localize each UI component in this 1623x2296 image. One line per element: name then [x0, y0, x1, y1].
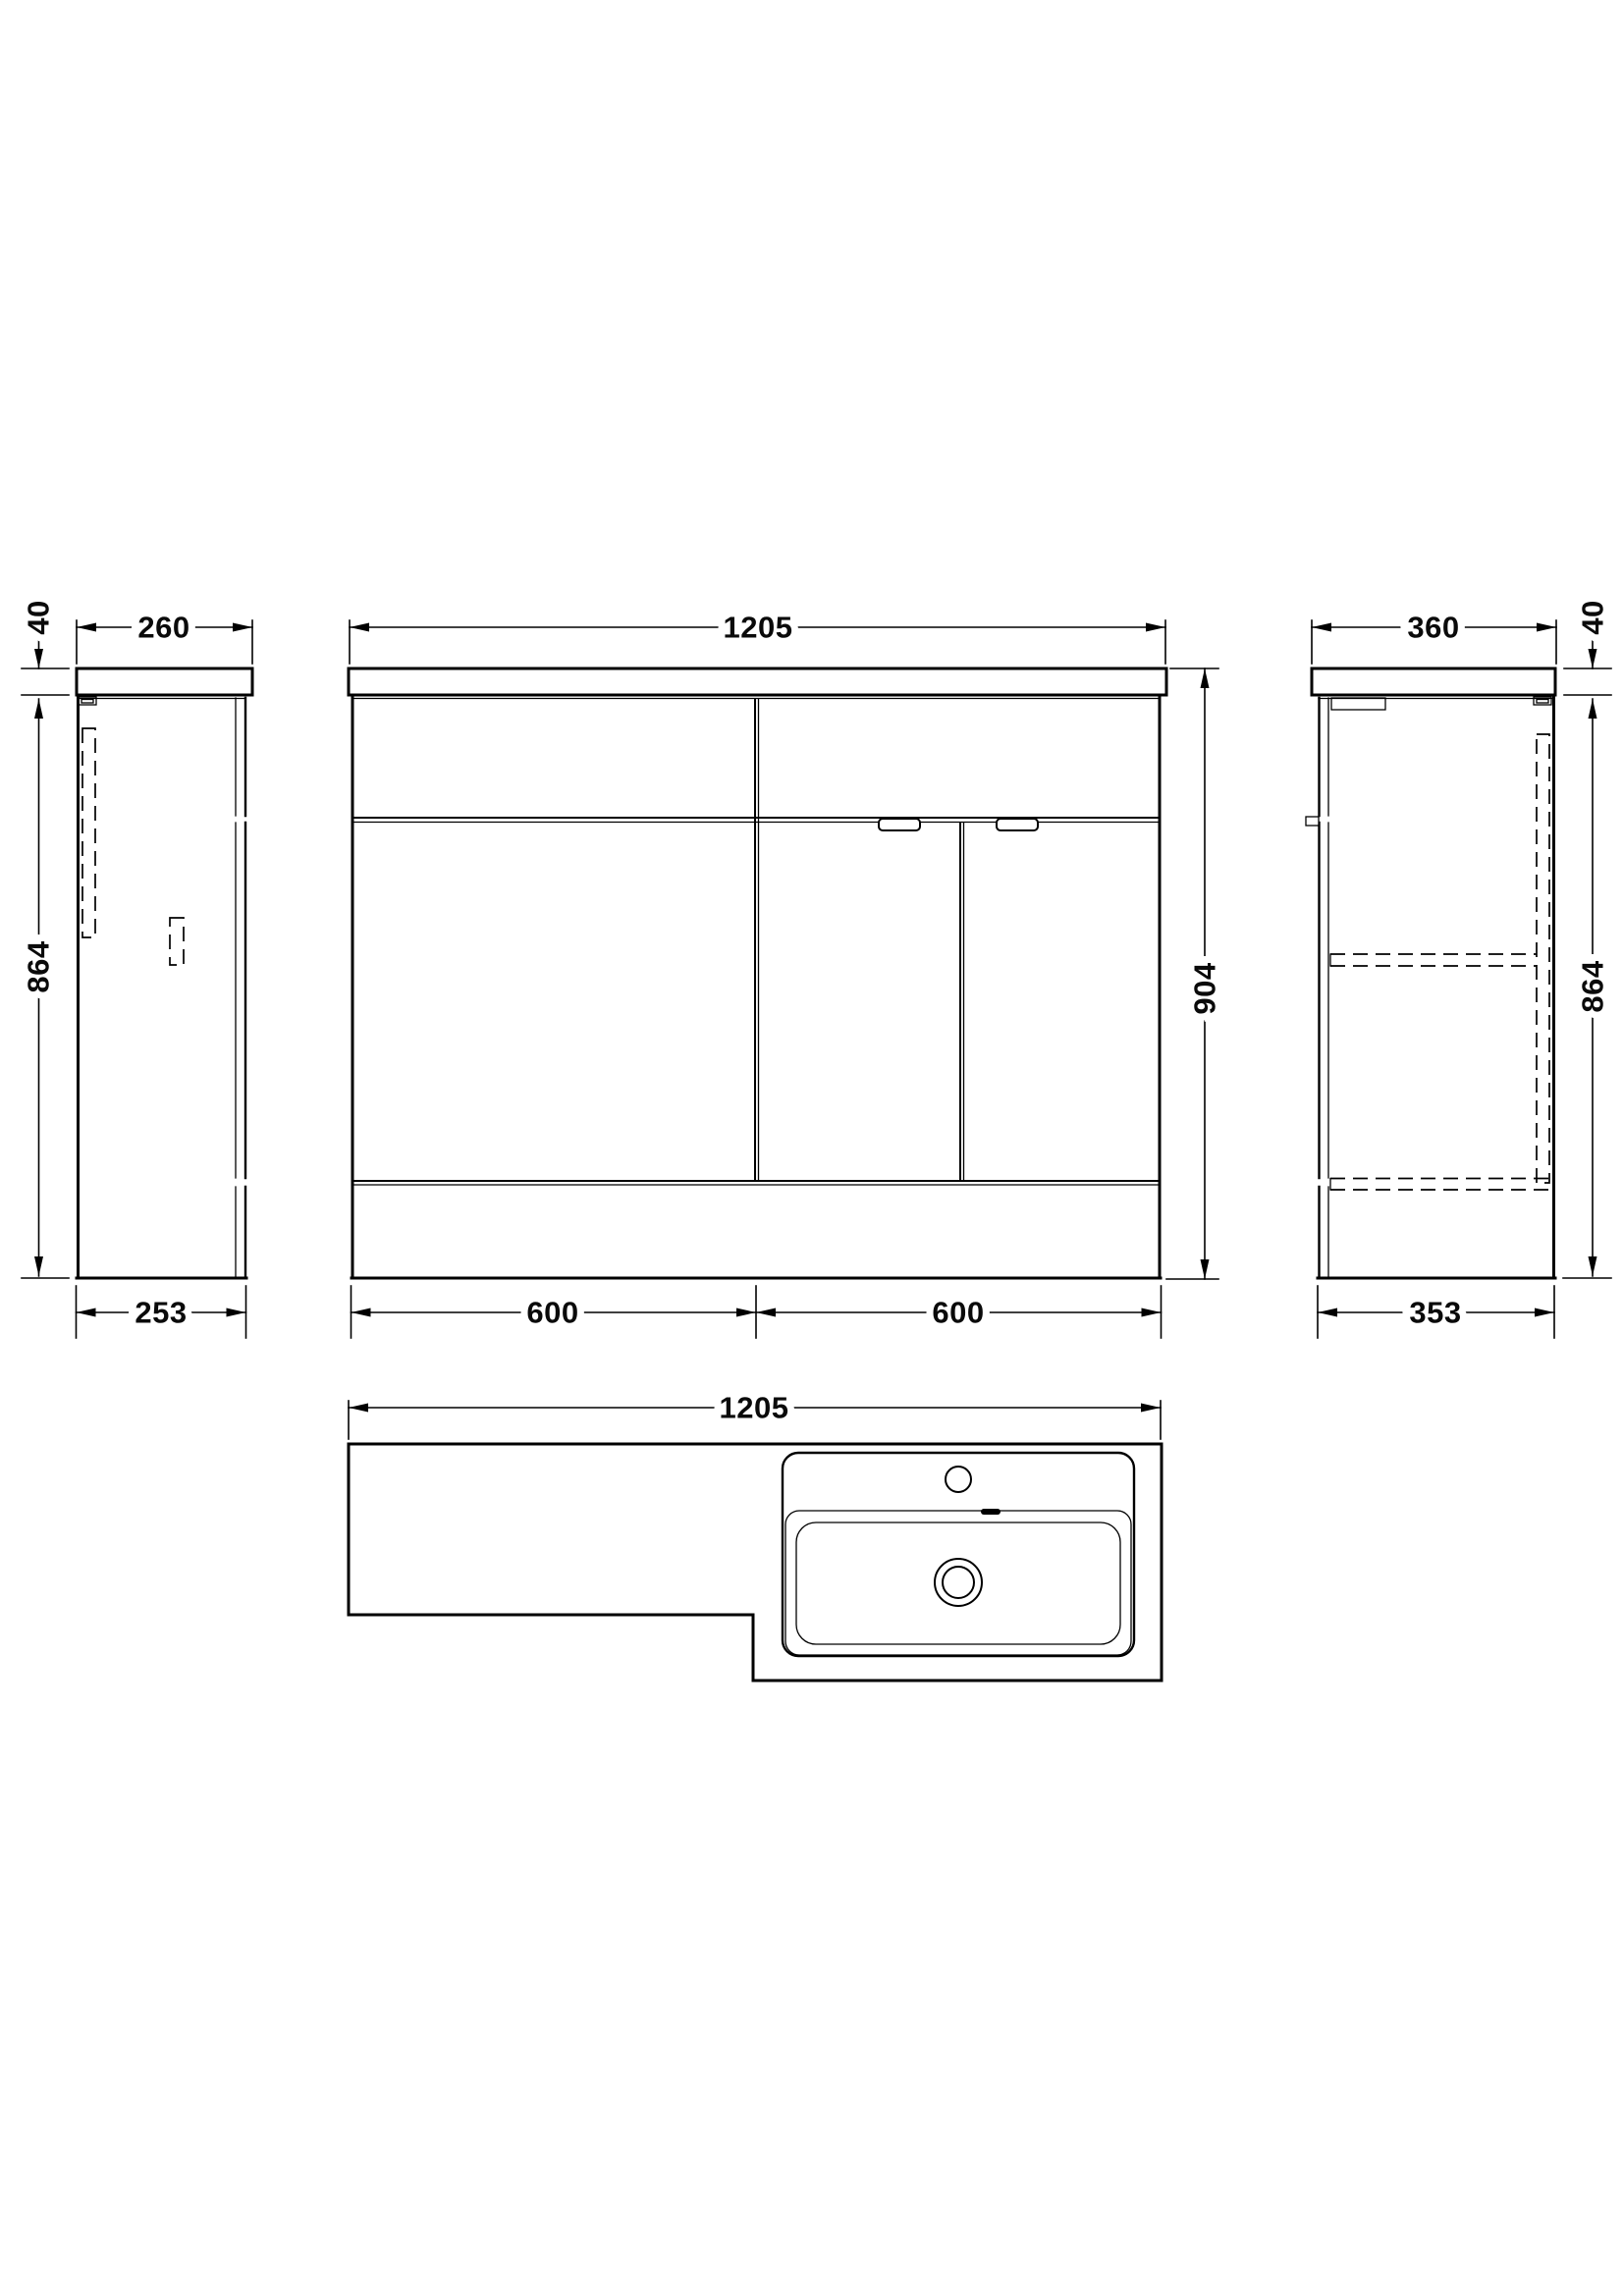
- dim-253-label: 253: [135, 1296, 187, 1330]
- left-view-countertop: [77, 668, 252, 695]
- overflow-slot-icon: [981, 1509, 1001, 1515]
- background: [0, 0, 1623, 2296]
- technical-drawing-page: 260 1205 360 40 40: [0, 0, 1623, 2296]
- dim-600-right-label: 600: [932, 1296, 984, 1330]
- right-view-countertop: [1312, 668, 1555, 695]
- drawing-canvas: 260 1205 360 40 40: [0, 0, 1623, 2296]
- dim-904-label: 904: [1188, 962, 1222, 1014]
- door-handle-left: [879, 819, 920, 830]
- dim-600-left-label: 600: [526, 1296, 578, 1330]
- dim-864-right-label: 864: [1576, 960, 1610, 1012]
- dim-40-right-label: 40: [1576, 600, 1610, 634]
- right-view-handle-profile: [1306, 817, 1319, 826]
- door-handle-right: [997, 819, 1038, 830]
- dim-40-left-label: 40: [22, 600, 56, 634]
- dim-864-left-label: 864: [22, 940, 56, 992]
- dim-1205-plan-label: 1205: [720, 1391, 789, 1425]
- dim-1205-front-label: 1205: [724, 611, 793, 645]
- dim-360-label: 360: [1407, 611, 1459, 645]
- dim-260-label: 260: [137, 611, 189, 645]
- dim-353-label: 353: [1409, 1296, 1461, 1330]
- front-view-countertop: [349, 668, 1166, 695]
